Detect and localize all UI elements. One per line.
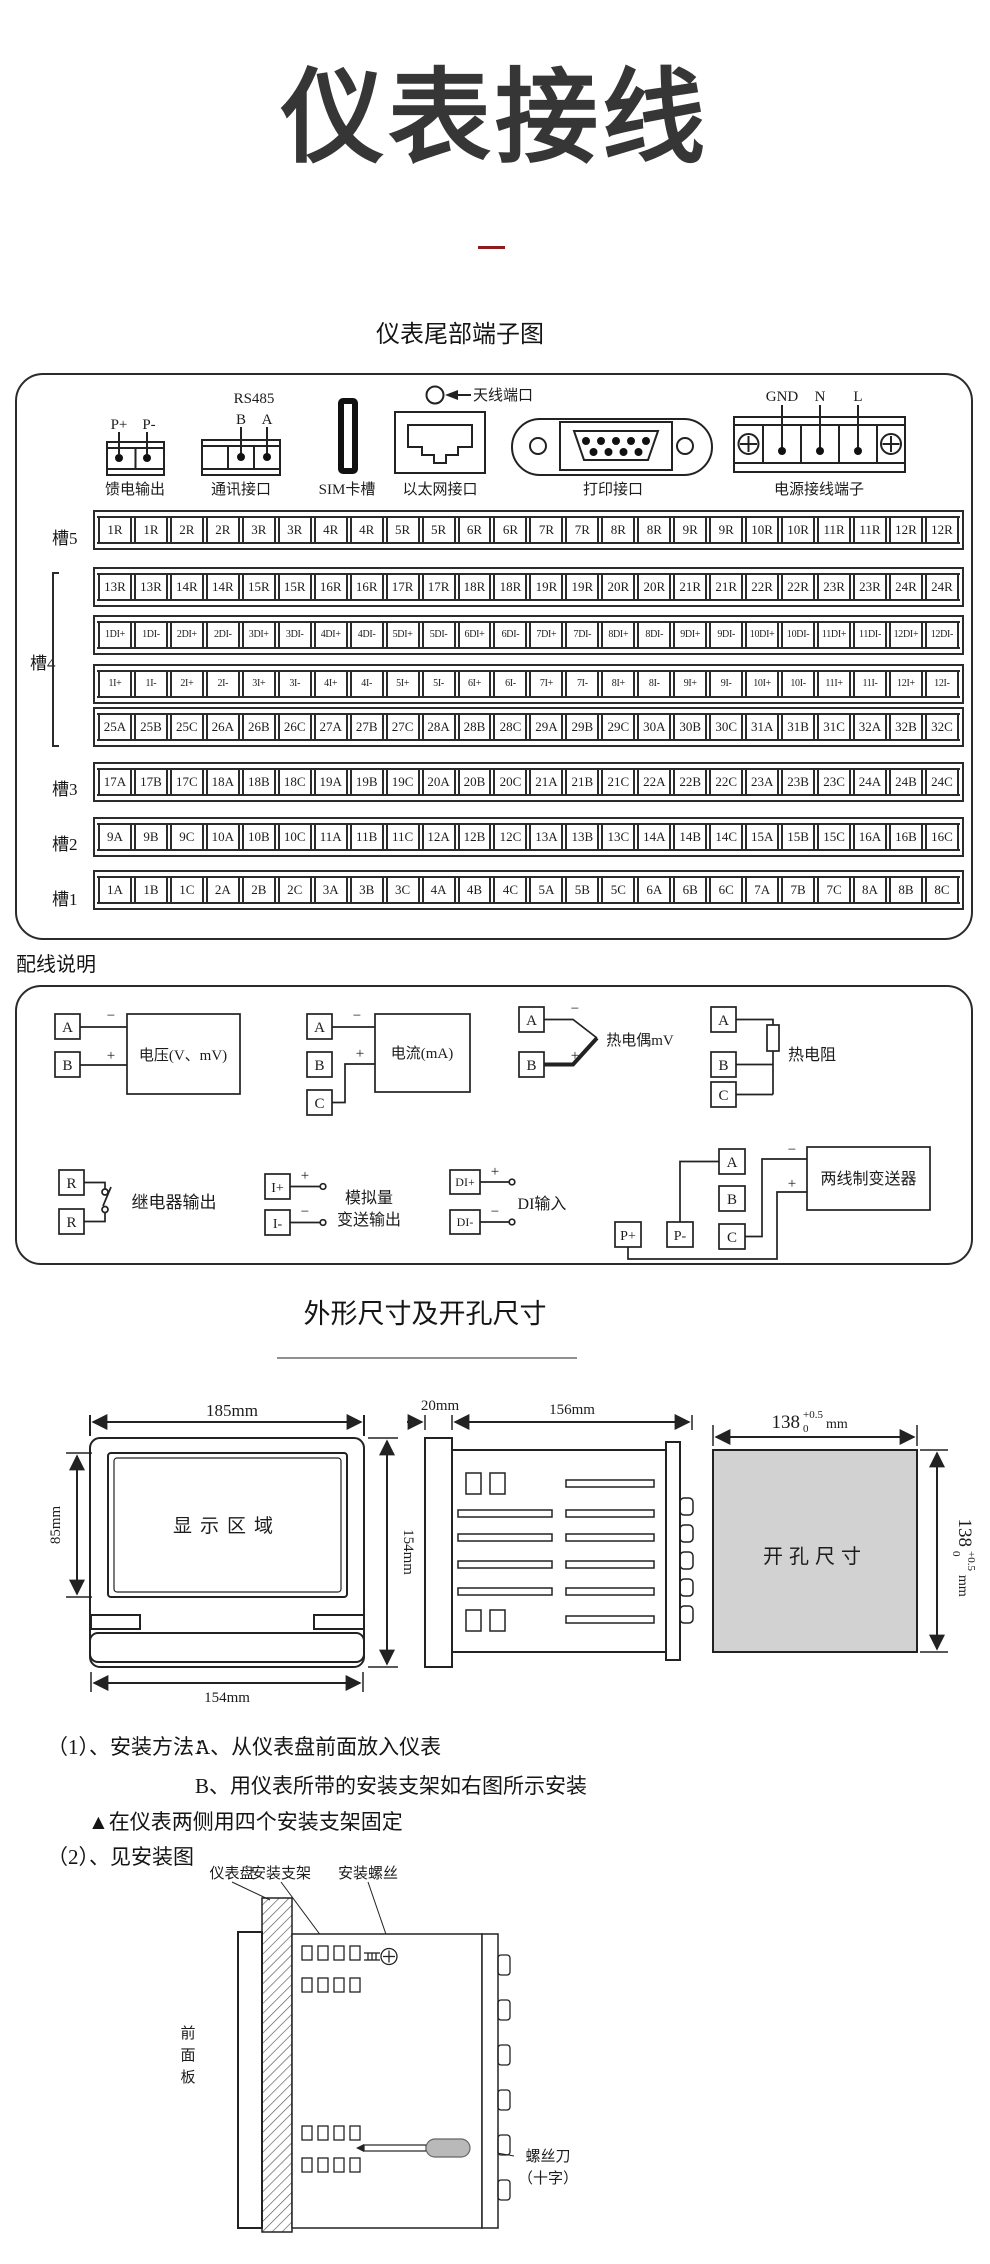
terminal-cell: 2B xyxy=(242,878,276,902)
terminal-di-minus: DI- xyxy=(457,1215,474,1229)
terminal-cell: 4I- xyxy=(350,672,384,696)
rtd-label: 热电阻 xyxy=(788,1046,836,1064)
terminal-cell: 17R xyxy=(386,575,420,599)
terminal-cell: 31B xyxy=(781,715,815,739)
mounting-panel-hatched xyxy=(262,1898,292,2232)
instrument-front-bezel xyxy=(238,1932,262,2228)
terminal-b: B xyxy=(718,1058,728,1074)
terminal-cell: 32C xyxy=(925,715,959,739)
terminal-cell: 10I- xyxy=(781,672,815,696)
power-terminal-label: 电源接线端子 xyxy=(774,481,864,498)
terminal-cell: 31A xyxy=(745,715,779,739)
terminal-cell: 5I- xyxy=(422,672,456,696)
svg-text:0: 0 xyxy=(803,1423,809,1435)
side-body-dim: 156mm xyxy=(549,1402,595,1418)
minus-sign: − xyxy=(301,1204,309,1220)
instrument-rear-panel xyxy=(482,1934,498,2228)
terminal-cell: 16R xyxy=(314,575,348,599)
sim-slot-label: SIM卡槽 xyxy=(319,481,376,498)
display-height-dim: 85mm xyxy=(48,1506,64,1545)
transmitter-wiring-diagram xyxy=(615,1147,930,1259)
terminal-cell: 12A xyxy=(422,825,456,849)
terminal-cell: 22R xyxy=(745,575,779,599)
plus-sign: + xyxy=(788,1176,796,1192)
front-height-dim: 154mm xyxy=(400,1529,416,1575)
terminal-cell: 2A xyxy=(206,878,240,902)
terminal-cell: 12R xyxy=(925,518,959,542)
terminal-cell: 25C xyxy=(170,715,204,739)
terminal-cell: 2C xyxy=(278,878,312,902)
terminal-cell: 8R xyxy=(601,518,635,542)
side-flange-dim: 20mm xyxy=(421,1398,460,1414)
terminal-cell: 6R xyxy=(493,518,527,542)
terminal-cell: 5R xyxy=(386,518,420,542)
terminal-cell: 21R xyxy=(709,575,743,599)
terminal-cell: 9DI- xyxy=(709,623,743,647)
terminal-cell: 22R xyxy=(781,575,815,599)
terminal-cell: 10C xyxy=(278,825,312,849)
front-width-dim: 185mm xyxy=(206,1401,258,1420)
comm-connector xyxy=(202,427,280,475)
svg-text:138: 138 xyxy=(772,1412,801,1433)
terminal-row-slot5-2: 13R13R14R14R15R15R16R16R17R17R18R18R19R1… xyxy=(93,567,964,607)
terminal-r: R xyxy=(66,1176,76,1192)
terminal-cell: 16B xyxy=(889,825,923,849)
transmitter-label: 两线制变送器 xyxy=(820,1170,916,1188)
terminal-cell: 15R xyxy=(278,575,312,599)
screw-icon xyxy=(881,434,901,454)
terminal-cell: 10R xyxy=(781,518,815,542)
terminal-cell: 26C xyxy=(278,715,312,739)
wiring-diagrams-box: A B − + 电压(V、mV) A B C − + 电流(mA) A B − … xyxy=(15,985,973,1265)
terminal-cell: 8DI+ xyxy=(601,623,635,647)
feed-pin1-label: P+ xyxy=(111,417,128,433)
terminal-cell: 25B xyxy=(134,715,168,739)
terminal-cell: 11C xyxy=(386,825,420,849)
terminal-a: A xyxy=(718,1013,729,1029)
terminal-cell: 7I+ xyxy=(529,672,563,696)
terminal-cell: 24A xyxy=(853,770,887,794)
terminal-cell: 5DI+ xyxy=(386,623,420,647)
terminal-cell: 1DI+ xyxy=(98,623,132,647)
terminal-cell: 11A xyxy=(314,825,348,849)
terminal-cell: 26A xyxy=(206,715,240,739)
terminal-cell: 9R xyxy=(709,518,743,542)
terminal-cell: 8C xyxy=(925,878,959,902)
rear-hooks xyxy=(498,1955,510,2200)
install-step-b: B、用仪表所带的安装支架如右图所示安装 xyxy=(195,1770,587,1800)
sim-slot-icon xyxy=(341,401,355,471)
terminal-cell: 3R xyxy=(278,518,312,542)
terminal-b: B xyxy=(62,1058,72,1074)
terminal-cell: 27C xyxy=(386,715,420,739)
terminal-cell: 21B xyxy=(565,770,599,794)
plus-sign: + xyxy=(491,1164,499,1180)
terminal-cell: 14B xyxy=(673,825,707,849)
terminal-p-minus: P- xyxy=(674,1229,687,1244)
rs485-label: RS485 xyxy=(234,391,275,407)
page-title: 仪表接线 xyxy=(0,48,990,187)
terminal-section-heading: 仪表尾部端子图 xyxy=(0,314,920,349)
terminal-cell: 5R xyxy=(422,518,456,542)
dimensions-heading-underline xyxy=(277,1357,577,1359)
plus-sign: + xyxy=(571,1048,579,1064)
terminal-cell: 27B xyxy=(350,715,384,739)
minus-sign: − xyxy=(788,1142,796,1158)
screw-label: 安装螺丝 xyxy=(338,1865,398,1882)
terminal-cell: 15C xyxy=(817,825,851,849)
terminal-cell: 12I- xyxy=(925,672,959,696)
terminal-row-slot5-1: 1R1R2R2R3R3R4R4R5R5R6R6R7R7R8R8R9R9R10R1… xyxy=(93,510,964,550)
terminal-i-plus: I+ xyxy=(271,1181,284,1196)
terminal-cell: 2R xyxy=(206,518,240,542)
terminal-cell: 23A xyxy=(745,770,779,794)
relay-label: 继电器输出 xyxy=(132,1193,217,1212)
analog-label-line1: 模拟量 xyxy=(345,1189,393,1207)
terminal-c: C xyxy=(718,1088,728,1104)
terminal-cell: 11DI- xyxy=(853,623,887,647)
terminal-cell: 15R xyxy=(242,575,276,599)
terminal-cell: 28A xyxy=(422,715,456,739)
terminal-cell: 9I+ xyxy=(673,672,707,696)
terminal-cell: 6DI- xyxy=(493,623,527,647)
terminal-a: A xyxy=(727,1155,738,1171)
terminal-cell: 27A xyxy=(314,715,348,739)
terminal-cell: 9A xyxy=(98,825,132,849)
terminal-c: C xyxy=(727,1230,737,1246)
terminal-cell: 21C xyxy=(601,770,635,794)
terminal-cell: 12B xyxy=(458,825,492,849)
terminal-row-slot2: 9A9B9C10A10B10C11A11B11C12A12B12C13A13B1… xyxy=(93,817,964,857)
install-note: ▲在仪表两侧用四个安装支架固定 xyxy=(88,1806,403,1836)
terminal-cell: 21R xyxy=(673,575,707,599)
terminal-cell: 9B xyxy=(134,825,168,849)
terminal-cell: 5A xyxy=(529,878,563,902)
print-port-icon xyxy=(512,419,712,475)
terminal-cell: 19R xyxy=(565,575,599,599)
terminal-cell: 22B xyxy=(673,770,707,794)
plus-sign: + xyxy=(301,1168,309,1184)
terminal-cell: 16C xyxy=(925,825,959,849)
terminal-cell: 14A xyxy=(637,825,671,849)
cutout-height-dim: 138 +0.5 0 mm xyxy=(950,1519,977,1597)
screw-icon xyxy=(739,434,759,454)
feed-output-label: 馈电输出 xyxy=(105,481,165,498)
title-accent-dash xyxy=(478,246,505,249)
terminal-cell: 19B xyxy=(350,770,384,794)
terminal-cell: 7DI+ xyxy=(529,623,563,647)
terminal-cell: 11R xyxy=(817,518,851,542)
analog-label-line2: 变送输出 xyxy=(337,1211,401,1229)
terminal-cell: 13A xyxy=(529,825,563,849)
terminal-cell: 30B xyxy=(673,715,707,739)
terminal-cell: 2DI- xyxy=(206,623,240,647)
front-view-drawing xyxy=(66,1415,398,1692)
slot4-bracket-tick-bottom xyxy=(52,745,59,747)
terminal-b: B xyxy=(727,1192,737,1208)
ethernet-jack-icon xyxy=(395,412,485,473)
terminal-cell: 3DI+ xyxy=(242,623,276,647)
terminal-cell: 8I- xyxy=(637,672,671,696)
terminal-cell: 1I- xyxy=(134,672,168,696)
terminal-cell: 10DI- xyxy=(781,623,815,647)
terminal-cell: 17B xyxy=(134,770,168,794)
terminal-cell: 4R xyxy=(314,518,348,542)
print-port-label: 打印接口 xyxy=(583,481,643,498)
display-area-label: 显示区域 xyxy=(173,1515,281,1537)
terminal-cell: 10DI+ xyxy=(745,623,779,647)
terminal-cell: 17A xyxy=(98,770,132,794)
ethernet-label: 以太网接口 xyxy=(402,481,477,498)
terminal-cell: 4R xyxy=(350,518,384,542)
terminal-cell: 28C xyxy=(493,715,527,739)
terminal-cell: 7DI- xyxy=(565,623,599,647)
terminal-cell: 20R xyxy=(637,575,671,599)
slot3-label: 槽3 xyxy=(52,775,78,800)
terminal-cell: 19A xyxy=(314,770,348,794)
terminal-cell: 26B xyxy=(242,715,276,739)
terminal-cell: 2I+ xyxy=(170,672,204,696)
terminal-cell: 8DI- xyxy=(637,623,671,647)
terminal-cell: 9DI+ xyxy=(673,623,707,647)
svg-text:138: 138 xyxy=(954,1519,975,1548)
terminal-cell: 1A xyxy=(98,878,132,902)
terminal-cell: 6DI+ xyxy=(458,623,492,647)
terminal-cell: 13C xyxy=(601,825,635,849)
terminal-row-slot4-i: 1I+1I-2I+2I-3I+3I-4I+4I-5I+5I-6I+6I-7I+7… xyxy=(93,664,964,704)
terminal-panel: P+ P- 馈电输出 RS485 B A 通讯接口 SIM卡槽 以太网接口 xyxy=(15,373,973,940)
panel-label: 仪表盘 xyxy=(209,1864,254,1882)
terminal-cell: 3B xyxy=(350,878,384,902)
install-step-a: A、从仪表盘前面放入仪表 xyxy=(195,1731,441,1761)
terminal-cell: 20A xyxy=(422,770,456,794)
terminal-cell: 29A xyxy=(529,715,563,739)
svg-text:mm: mm xyxy=(826,1417,848,1432)
power-pin-n-label: N xyxy=(815,389,826,405)
terminal-cell: 13B xyxy=(565,825,599,849)
terminal-cell: 16R xyxy=(350,575,384,599)
thermocouple-label: 热电偶mV xyxy=(606,1032,674,1049)
terminal-cell: 12DI+ xyxy=(889,623,923,647)
dimensions-section-heading: 外形尺寸及开孔尺寸 xyxy=(0,1292,850,1331)
terminal-cell: 20R xyxy=(601,575,635,599)
terminal-cell: 9C xyxy=(170,825,204,849)
comm-label: 通讯接口 xyxy=(211,481,271,498)
terminal-cell: 8B xyxy=(889,878,923,902)
cutout-width-dim: 138 +0.5 0 mm xyxy=(772,1409,848,1435)
terminal-cell: 13R xyxy=(134,575,168,599)
slot4-bracket-tick-top xyxy=(52,572,59,574)
antenna-label: 天线端口 xyxy=(473,387,533,404)
terminal-cell: 11B xyxy=(350,825,384,849)
svg-text:mm: mm xyxy=(955,1575,970,1597)
terminal-cell: 32B xyxy=(889,715,923,739)
terminal-cell: 9R xyxy=(673,518,707,542)
installation-drawing: 仪表盘 安装支架 安装螺丝 螺丝刀 （十字） 前 面 板 xyxy=(0,1860,990,2264)
terminal-cell: 7R xyxy=(565,518,599,542)
plus-sign: + xyxy=(107,1048,115,1064)
terminal-cell: 10A xyxy=(206,825,240,849)
dimensions-drawing: 185mm 85mm 154mm 154mm 显示区域 20mm 156mm xyxy=(0,1380,990,1710)
front-bottom-width-dim: 154mm xyxy=(204,1690,250,1706)
terminal-cell: 28B xyxy=(458,715,492,739)
terminal-cell: 3DI- xyxy=(278,623,312,647)
feed-pin2-label: P- xyxy=(142,417,155,433)
terminal-cell: 1R xyxy=(98,518,132,542)
terminal-cell: 6C xyxy=(709,878,743,902)
terminal-cell: 6A xyxy=(637,878,671,902)
terminal-cell: 14R xyxy=(170,575,204,599)
svg-text:面: 面 xyxy=(180,2048,195,2064)
terminal-cell: 21A xyxy=(529,770,563,794)
terminal-cell: 31C xyxy=(817,715,851,739)
minus-sign: − xyxy=(571,1001,579,1017)
terminal-cell: 18A xyxy=(206,770,240,794)
side-view-drawing xyxy=(407,1415,693,1667)
terminal-cell: 20B xyxy=(458,770,492,794)
terminal-cell: 18R xyxy=(493,575,527,599)
power-pin-gnd-label: GND xyxy=(766,389,799,405)
terminal-cell: 5B xyxy=(565,878,599,902)
terminal-cell: 23B xyxy=(781,770,815,794)
terminal-cell: 1I+ xyxy=(98,672,132,696)
wiring-section-heading: 配线说明 xyxy=(16,948,96,977)
terminal-row-slot1: 1A1B1C2A2B2C3A3B3C4A4B4C5A5B5C6A6B6C7A7B… xyxy=(93,870,964,910)
terminal-cell: 24B xyxy=(889,770,923,794)
terminal-a: A xyxy=(526,1013,537,1029)
terminal-cell: 20C xyxy=(493,770,527,794)
current-label: 电流(mA) xyxy=(391,1045,454,1062)
cutout-label: 开孔尺寸 xyxy=(763,1545,867,1568)
terminal-cell: 5C xyxy=(601,878,635,902)
terminal-cell: 24R xyxy=(925,575,959,599)
terminal-cell: 24C xyxy=(925,770,959,794)
minus-sign: − xyxy=(107,1008,115,1024)
cutout-drawing xyxy=(713,1425,948,1652)
screwdriver-label-line1: 螺丝刀 xyxy=(525,2148,570,2165)
terminal-cell: 1DI- xyxy=(134,623,168,647)
terminal-c: C xyxy=(314,1096,324,1112)
terminal-cell: 1R xyxy=(134,518,168,542)
terminal-b: B xyxy=(314,1058,324,1074)
terminal-cell: 12I+ xyxy=(889,672,923,696)
screwdriver-label-line2: （十字） xyxy=(518,2170,578,2187)
terminal-cell: 11I- xyxy=(853,672,887,696)
terminal-cell: 23R xyxy=(853,575,887,599)
terminal-cell: 6I+ xyxy=(458,672,492,696)
terminal-cell: 18C xyxy=(278,770,312,794)
terminal-cell: 19C xyxy=(386,770,420,794)
terminal-cell: 4DI+ xyxy=(314,623,348,647)
terminal-cell: 30C xyxy=(709,715,743,739)
terminal-cell: 18R xyxy=(458,575,492,599)
terminal-cell: 23R xyxy=(817,575,851,599)
terminal-cell: 32A xyxy=(853,715,887,739)
current-wiring-diagram xyxy=(307,1014,470,1115)
terminal-cell: 10B xyxy=(242,825,276,849)
terminal-cell: 3R xyxy=(242,518,276,542)
terminal-cell: 7I- xyxy=(565,672,599,696)
terminal-cell: 6I- xyxy=(493,672,527,696)
terminal-cell: 8I+ xyxy=(601,672,635,696)
terminal-cell: 7B xyxy=(781,878,815,902)
terminal-cell: 10R xyxy=(745,518,779,542)
terminal-cell: 12C xyxy=(493,825,527,849)
terminal-cell: 22A xyxy=(637,770,671,794)
terminal-i-minus: I- xyxy=(273,1217,283,1232)
terminal-cell: 8R xyxy=(637,518,671,542)
terminal-cell: 18B xyxy=(242,770,276,794)
feed-output-connector xyxy=(107,432,164,475)
terminal-cell: 12R xyxy=(889,518,923,542)
terminal-a: A xyxy=(62,1020,73,1036)
terminal-cell: 9I- xyxy=(709,672,743,696)
terminal-cell: 19R xyxy=(529,575,563,599)
terminal-row-slot4-abc: 25A25B25C26A26B26C27A27B27C28A28B28C29A2… xyxy=(93,707,964,747)
terminal-cell: 17C xyxy=(170,770,204,794)
svg-text:前: 前 xyxy=(180,2025,195,2042)
terminal-cell: 16A xyxy=(853,825,887,849)
terminal-cell: 17R xyxy=(422,575,456,599)
terminal-cell: 6R xyxy=(458,518,492,542)
antenna-port-icon xyxy=(427,387,472,404)
comm-pin-a-label: A xyxy=(262,412,273,428)
terminal-cell: 7R xyxy=(529,518,563,542)
terminal-cell: 12DI- xyxy=(925,623,959,647)
minus-sign: − xyxy=(353,1008,361,1024)
slot4-bracket xyxy=(52,572,54,747)
voltage-label: 电压(V、mV) xyxy=(139,1047,227,1064)
di-input-label: DI输入 xyxy=(518,1195,567,1213)
terminal-cell: 4C xyxy=(493,878,527,902)
terminal-cell: 29C xyxy=(601,715,635,739)
terminal-cell: 11R xyxy=(853,518,887,542)
svg-text:0: 0 xyxy=(950,1551,962,1557)
comm-pin-b-label: B xyxy=(236,412,246,428)
terminal-cell: 8A xyxy=(853,878,887,902)
slot1-label: 槽1 xyxy=(52,885,78,910)
terminal-cell: 2I- xyxy=(206,672,240,696)
terminal-di-plus: DI+ xyxy=(455,1175,475,1189)
svg-text:+0.5: +0.5 xyxy=(803,1409,823,1421)
terminal-cell: 24R xyxy=(889,575,923,599)
plus-sign: + xyxy=(356,1046,364,1062)
terminal-cell: 1B xyxy=(134,878,168,902)
minus-sign: − xyxy=(491,1204,499,1220)
svg-text:+0.5: +0.5 xyxy=(965,1551,977,1571)
terminal-cell: 15A xyxy=(745,825,779,849)
terminal-cell: 5DI- xyxy=(422,623,456,647)
terminal-cell: 3A xyxy=(314,878,348,902)
svg-text:板: 板 xyxy=(180,2068,195,2086)
terminal-cell: 3I- xyxy=(278,672,312,696)
terminal-cell: 2R xyxy=(170,518,204,542)
terminal-b: B xyxy=(526,1058,536,1074)
terminal-cell: 2DI+ xyxy=(170,623,204,647)
terminal-cell: 15B xyxy=(781,825,815,849)
terminal-cell: 11I+ xyxy=(817,672,851,696)
install-method-label: （1）、安装方法： xyxy=(47,1731,215,1761)
bracket-label: 安装支架 xyxy=(251,1865,311,1882)
power-pin-l-label: L xyxy=(853,389,862,405)
terminal-cell: 25A xyxy=(98,715,132,739)
terminal-cell: 23C xyxy=(817,770,851,794)
slot2-label: 槽2 xyxy=(52,830,78,855)
wiring-diagrams-drawing: A B − + 电压(V、mV) A B C − + 电流(mA) A B − … xyxy=(17,987,971,1263)
slot5-label: 槽5 xyxy=(52,524,78,549)
terminal-p-plus: P+ xyxy=(620,1229,636,1244)
terminal-cell: 5I+ xyxy=(386,672,420,696)
